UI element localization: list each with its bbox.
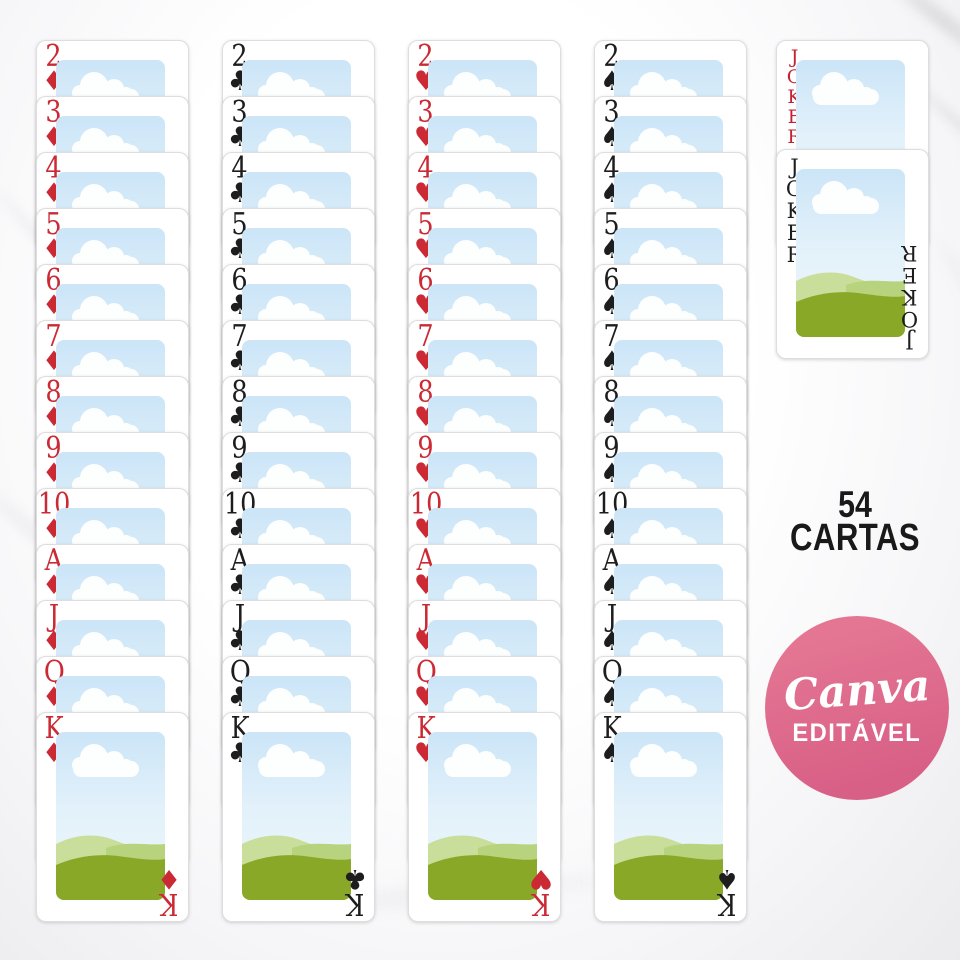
card-picture (428, 732, 537, 900)
hill-front (614, 855, 723, 900)
corner-index-bottom: K♥ (527, 867, 555, 916)
canva-badge: Canva EDITÁVEL (765, 616, 949, 800)
joker-letter: E (902, 264, 917, 286)
card-picture (242, 732, 351, 900)
hill-front (56, 855, 165, 900)
card-k-clubs: K♣K♣ (222, 712, 375, 922)
cloud-icon (812, 72, 879, 105)
card-art-landscape (56, 732, 165, 900)
poster: 2♦2♦3♦3♦4♦4♦5♦5♦6♦6♦7♦7♦8♦8♦9♦9♦10♦10♦A♦… (0, 0, 960, 960)
joker-letter: K (902, 286, 918, 308)
card-picture (56, 732, 165, 900)
editable-label: EDITÁVEL (793, 719, 922, 748)
rank-label: K (159, 890, 178, 916)
joker-letter: R (902, 242, 918, 264)
card-art-landscape (796, 169, 905, 337)
hill-front (428, 855, 537, 900)
card-joker-black: JOKERJOKER (776, 149, 929, 359)
marble-vein (926, 226, 960, 446)
joker-letter: O (901, 308, 918, 330)
cloud-icon (630, 744, 697, 777)
cloud-icon (258, 744, 325, 777)
rank-label: K (345, 890, 364, 916)
card-art-landscape (428, 732, 537, 900)
card-picture (614, 732, 723, 900)
corner-index-bottom: K♣ (341, 867, 369, 916)
card-picture (796, 169, 905, 337)
rank-label: K (717, 890, 736, 916)
hill-front (796, 292, 905, 337)
deck-count: 54 CARTAS (769, 488, 941, 554)
card-k-diamonds: K♦K♦ (36, 712, 189, 922)
hill-front (242, 855, 351, 900)
card-art-landscape (614, 732, 723, 900)
cloud-icon (72, 744, 139, 777)
joker-label-rotated: JOKER (896, 242, 923, 352)
cloud-icon (812, 181, 879, 214)
card-k-spades: K♠K♠ (594, 712, 747, 922)
card-art-landscape (242, 732, 351, 900)
card-k-hearts: K♥K♥ (408, 712, 561, 922)
cloud-icon (444, 744, 511, 777)
corner-index-bottom: K♦ (155, 867, 183, 916)
corner-index-bottom: K♠ (713, 867, 741, 916)
canva-logo: Canva (782, 663, 931, 719)
rank-label: K (531, 890, 550, 916)
deck-count-label: CARTAS (769, 522, 941, 554)
joker-letter: J (905, 330, 913, 352)
